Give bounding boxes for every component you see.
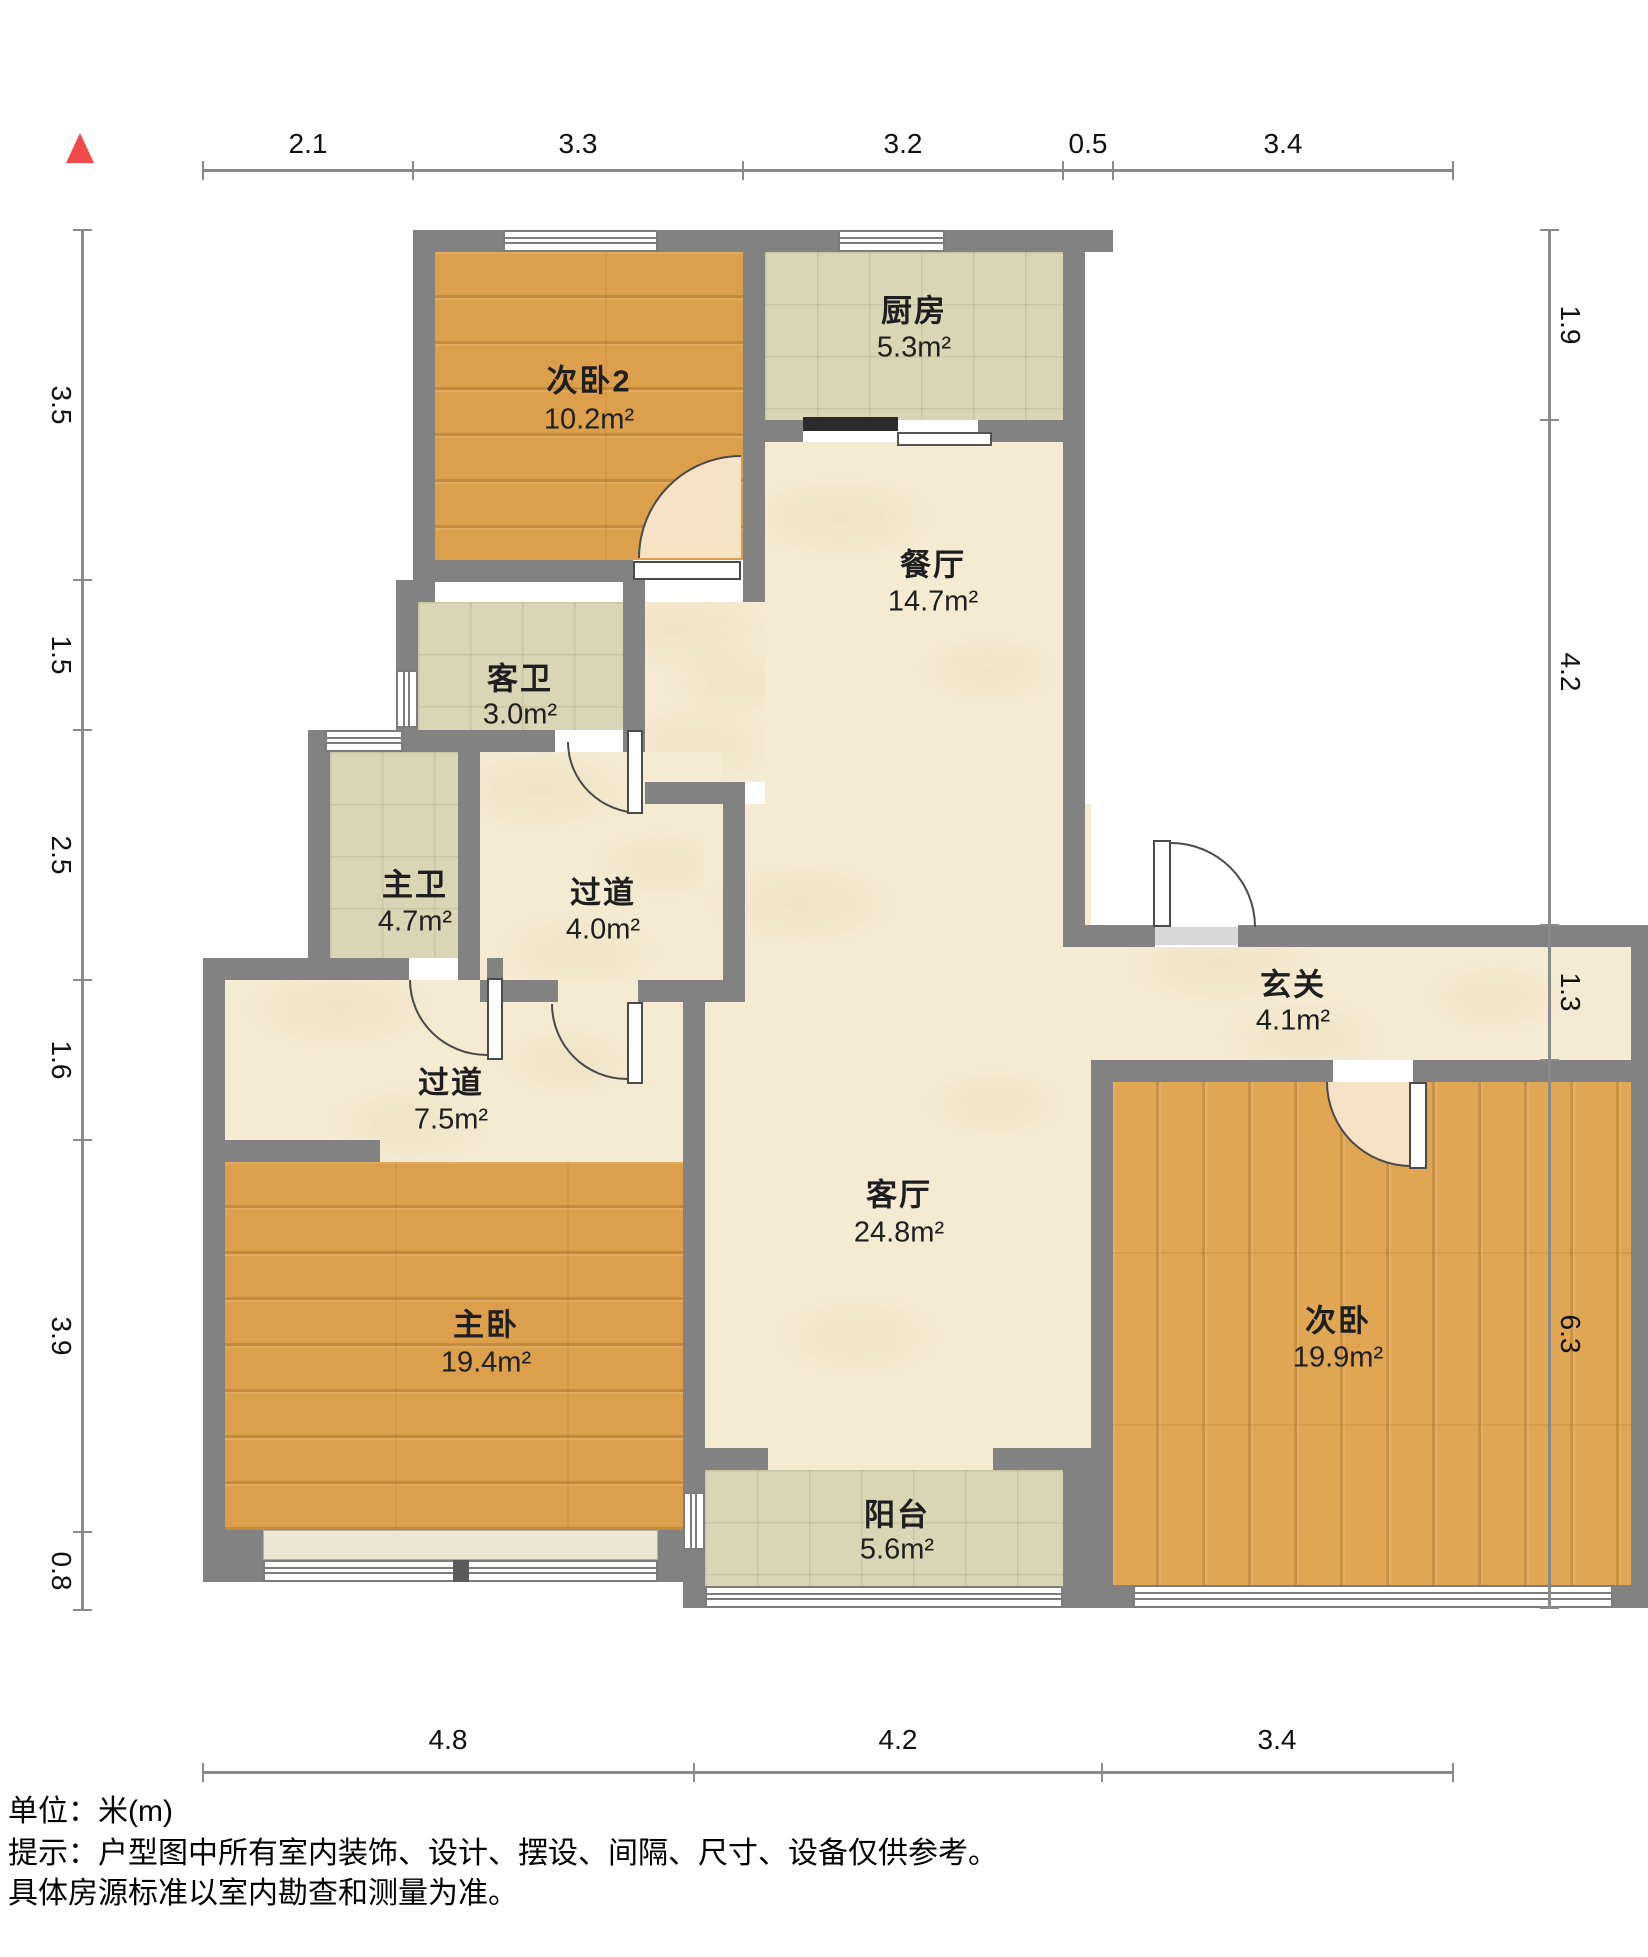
dim-top-1: 3.3 [559, 128, 598, 160]
tick [693, 1763, 695, 1782]
door-bedroom-leaf [1409, 1082, 1427, 1169]
door-bedroom2-leaf [633, 561, 741, 580]
room-bedroom-label: 次卧 [1305, 1296, 1371, 1341]
wall-kitchen-bottom-right [978, 420, 1085, 442]
door-hallway-leaf [627, 1002, 643, 1084]
room-entry-label: 玄关 [1260, 960, 1326, 1005]
tick [1540, 924, 1559, 926]
tick [73, 729, 92, 731]
wall-hallway-small-right [723, 804, 745, 1002]
room-balcony-label: 阳台 [864, 1490, 930, 1535]
wall-master-bath-bottom-left [203, 958, 409, 980]
wall-kitchen-bottom-left [765, 420, 803, 442]
tick [73, 979, 92, 981]
room-master-bedroom-area: 19.4m² [441, 1347, 531, 1380]
room-hallway-large-label: 过道 [418, 1058, 484, 1103]
window-balcony-left [683, 1492, 705, 1550]
tick [1540, 1059, 1559, 1061]
north-arrow-icon [66, 133, 94, 163]
wall-master-bath-left [308, 730, 330, 980]
wall-bedroom2-bottom [435, 560, 633, 582]
door-entry-threshold [1155, 927, 1238, 945]
footer-unit-line: 单位：米(m) [8, 1786, 173, 1830]
door-master-bath-leaf [487, 978, 503, 1060]
tick [1452, 161, 1454, 180]
dim-left-4: 3.9 [45, 1317, 77, 1356]
door-entry-swing [1171, 842, 1256, 927]
tick [202, 161, 204, 180]
room-kitchen-label: 厨房 [881, 286, 947, 331]
door-kitchen-slider-panel2 [897, 432, 992, 446]
window-guest-bath-left [396, 670, 418, 728]
window-kitchen-top [838, 230, 945, 252]
dimension-line-right [1548, 230, 1551, 1608]
tick [73, 229, 92, 231]
wall-outer-left [203, 958, 225, 1582]
wall-balcony-right [1063, 1470, 1091, 1608]
dim-right-3: 6.3 [1554, 1315, 1586, 1354]
tick [73, 579, 92, 581]
tick [73, 1139, 92, 1141]
dim-top-3: 0.5 [1069, 128, 1108, 160]
wall-outer-right [1631, 925, 1648, 1608]
tick [742, 161, 744, 180]
tick [1101, 1763, 1103, 1782]
wall-living-left [683, 1002, 705, 1470]
wall-entry-top-right [1238, 925, 1648, 947]
window-master-bath-top [325, 730, 403, 752]
tick [202, 1763, 204, 1782]
wall-bedroom-bottom-right-stub [1613, 1585, 1648, 1608]
room-master-bath-label: 主卫 [382, 860, 448, 905]
tick [1112, 161, 1114, 180]
dim-bottom-0: 4.8 [429, 1724, 468, 1756]
room-hallway-small-area: 4.0m² [566, 914, 640, 947]
wall-bedroom-top-left [1113, 1060, 1333, 1082]
dim-top-4: 3.4 [1264, 128, 1303, 160]
floor-plan-canvas: 次卧2 10.2m² 厨房 5.3m² 餐厅 14.7m² 客卫 3.0m² 主… [0, 0, 1648, 1957]
room-bedroom2-area: 10.2m² [544, 404, 634, 437]
room-living-floor [705, 804, 1091, 1470]
door-guest-bath-leaf [627, 730, 643, 814]
wall-master-bedroom-top [225, 1140, 380, 1162]
tick [1540, 229, 1559, 231]
tick [1452, 1763, 1454, 1782]
dimension-line-top [203, 169, 1453, 172]
dim-left-0: 3.5 [45, 386, 77, 425]
wall-living-bottom-left [683, 1448, 768, 1470]
dim-bottom-2: 3.4 [1258, 1724, 1297, 1756]
room-entry-area: 4.1m² [1256, 1005, 1330, 1038]
room-master-bedroom-label: 主卧 [453, 1300, 519, 1345]
wall-master-bath-right [458, 752, 480, 980]
wall-living-bottom-right [993, 1448, 1091, 1470]
room-guest-bath-label: 客卫 [487, 654, 553, 699]
door-kitchen-slider-panel1 [803, 417, 898, 431]
footer-tip-line: 提示：户型图中所有室内装饰、设计、摆设、间隔、尺寸、设备仅供参考。 [8, 1828, 998, 1872]
wall-corridor-step [645, 782, 745, 804]
dim-left-3: 1.6 [45, 1041, 77, 1080]
wall-bedroom-left [1091, 1060, 1113, 1608]
wall-bedroom2-left [413, 230, 435, 602]
room-balcony-area: 5.6m² [860, 1534, 934, 1567]
wall-bedroom-bottom-left-stub [1091, 1585, 1133, 1608]
dim-right-1: 4.2 [1554, 653, 1586, 692]
room-guest-bath-area: 3.0m² [483, 699, 557, 732]
wall-bedroom-top-right [1413, 1060, 1648, 1082]
dim-left-2: 2.5 [45, 836, 77, 875]
wall-bedroom2-right [743, 230, 765, 602]
room-dining-area: 14.7m² [888, 586, 978, 619]
room-master-bath-area: 4.7m² [378, 906, 452, 939]
dimension-line-left [81, 230, 84, 1610]
wall-guest-bath-right [623, 580, 645, 752]
dim-left-1: 1.5 [45, 636, 77, 675]
wall-bay-left-stub [225, 1530, 263, 1582]
tick [73, 1531, 92, 1533]
window-bedroom2-top [503, 230, 658, 252]
footer-note-line: 具体房源标准以室内勘查和测量为准。 [8, 1868, 518, 1912]
room-dining-label: 餐厅 [900, 540, 966, 585]
wall-hallway-door-right [638, 980, 723, 1002]
door-entry-leaf [1153, 840, 1171, 927]
dim-bottom-1: 4.2 [879, 1724, 918, 1756]
room-bedroom-area: 19.9m² [1293, 1342, 1383, 1375]
tick [1062, 161, 1064, 180]
tick [1540, 419, 1559, 421]
bay-window-sill [263, 1530, 658, 1560]
room-bedroom2-label: 次卧2 [546, 356, 631, 401]
wall-dining-right [1063, 230, 1085, 947]
window-bedroom-bottom [1133, 1585, 1613, 1608]
tick [1540, 1607, 1559, 1609]
bay-window-mullion [453, 1560, 469, 1582]
tick [412, 161, 414, 180]
window-balcony-rail [705, 1586, 1063, 1608]
tick [73, 1609, 92, 1611]
dim-right-0: 1.9 [1554, 306, 1586, 345]
room-hallway-large-area: 7.5m² [414, 1104, 488, 1137]
floor-plan: 次卧2 10.2m² 厨房 5.3m² 餐厅 14.7m² 客卫 3.0m² 主… [203, 230, 1453, 1610]
room-living-label: 客厅 [866, 1170, 932, 1215]
room-kitchen-area: 5.3m² [877, 332, 951, 365]
dim-right-2: 1.3 [1554, 973, 1586, 1012]
wall-master-bath-bottom-right [487, 958, 503, 980]
dim-top-0: 2.1 [289, 128, 328, 160]
dim-top-2: 3.2 [884, 128, 923, 160]
room-living-area: 24.8m² [854, 1217, 944, 1250]
wall-entry-top-left [1085, 925, 1155, 947]
room-hallway-small-label: 过道 [570, 868, 636, 913]
dim-left-5: 0.8 [45, 1552, 77, 1591]
dimension-line-bottom [203, 1771, 1453, 1774]
